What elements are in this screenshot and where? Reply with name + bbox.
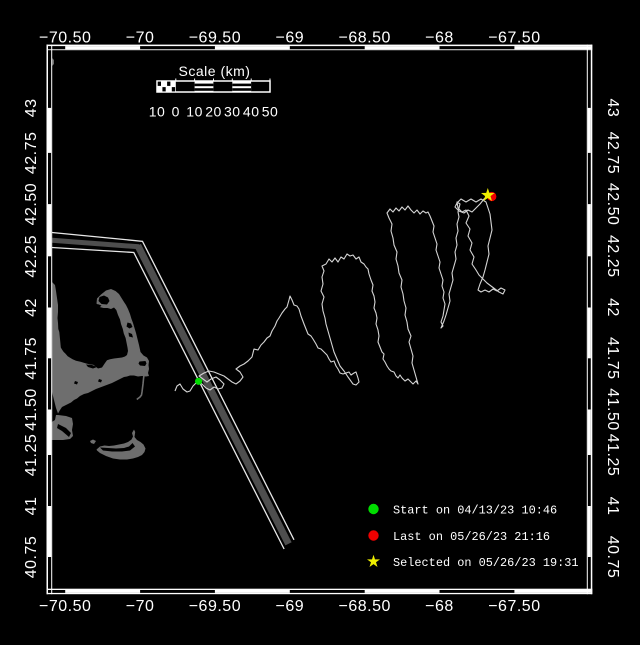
- svg-text:41.75: 41.75: [23, 337, 40, 380]
- svg-text:−70: −70: [126, 30, 155, 47]
- svg-text:40.75: 40.75: [23, 536, 40, 579]
- svg-text:−68: −68: [425, 30, 454, 47]
- svg-text:41: 41: [604, 497, 621, 516]
- svg-text:42.25: 42.25: [604, 235, 621, 278]
- svg-text:−68.50: −68.50: [339, 30, 391, 47]
- svg-text:41.50: 41.50: [23, 388, 40, 431]
- svg-text:50: 50: [262, 104, 279, 120]
- svg-text:0: 0: [172, 104, 180, 120]
- svg-text:41: 41: [23, 497, 40, 516]
- svg-text:−69.50: −69.50: [189, 30, 241, 47]
- svg-text:30: 30: [224, 104, 241, 120]
- svg-text:42: 42: [23, 298, 40, 317]
- svg-text:41.50: 41.50: [604, 388, 621, 431]
- svg-text:10: 10: [149, 104, 166, 120]
- svg-text:−68.50: −68.50: [339, 598, 391, 615]
- svg-text:40.75: 40.75: [604, 536, 621, 579]
- svg-text:42: 42: [604, 298, 621, 317]
- svg-text:41.75: 41.75: [604, 337, 621, 380]
- svg-text:Scale (km): Scale (km): [179, 63, 251, 79]
- svg-text:−70: −70: [126, 598, 155, 615]
- svg-text:20: 20: [205, 104, 222, 120]
- svg-text:−70.50: −70.50: [39, 30, 91, 47]
- svg-text:42.75: 42.75: [604, 132, 621, 175]
- svg-text:Last on 05/26/23 21:16: Last on 05/26/23 21:16: [393, 530, 550, 544]
- svg-text:42.50: 42.50: [23, 183, 40, 226]
- svg-text:−69: −69: [275, 598, 304, 615]
- svg-text:40: 40: [243, 104, 260, 120]
- svg-text:42.25: 42.25: [23, 235, 40, 278]
- svg-text:−70.50: −70.50: [39, 598, 91, 615]
- svg-text:41.25: 41.25: [604, 434, 621, 477]
- svg-text:−69: −69: [275, 30, 304, 47]
- svg-text:Start on 04/13/23 10:46: Start on 04/13/23 10:46: [393, 504, 557, 518]
- svg-text:43: 43: [604, 99, 621, 118]
- svg-text:−67.50: −67.50: [488, 598, 540, 615]
- svg-text:−69.50: −69.50: [189, 598, 241, 615]
- svg-text:43: 43: [23, 99, 40, 118]
- svg-text:−67.50: −67.50: [488, 30, 540, 47]
- svg-text:42.50: 42.50: [604, 183, 621, 226]
- svg-text:10: 10: [186, 104, 203, 120]
- svg-text:Selected on 05/26/23 19:31: Selected on 05/26/23 19:31: [393, 556, 579, 570]
- svg-text:42.75: 42.75: [23, 132, 40, 175]
- svg-text:−68: −68: [425, 598, 454, 615]
- svg-text:41.25: 41.25: [23, 434, 40, 477]
